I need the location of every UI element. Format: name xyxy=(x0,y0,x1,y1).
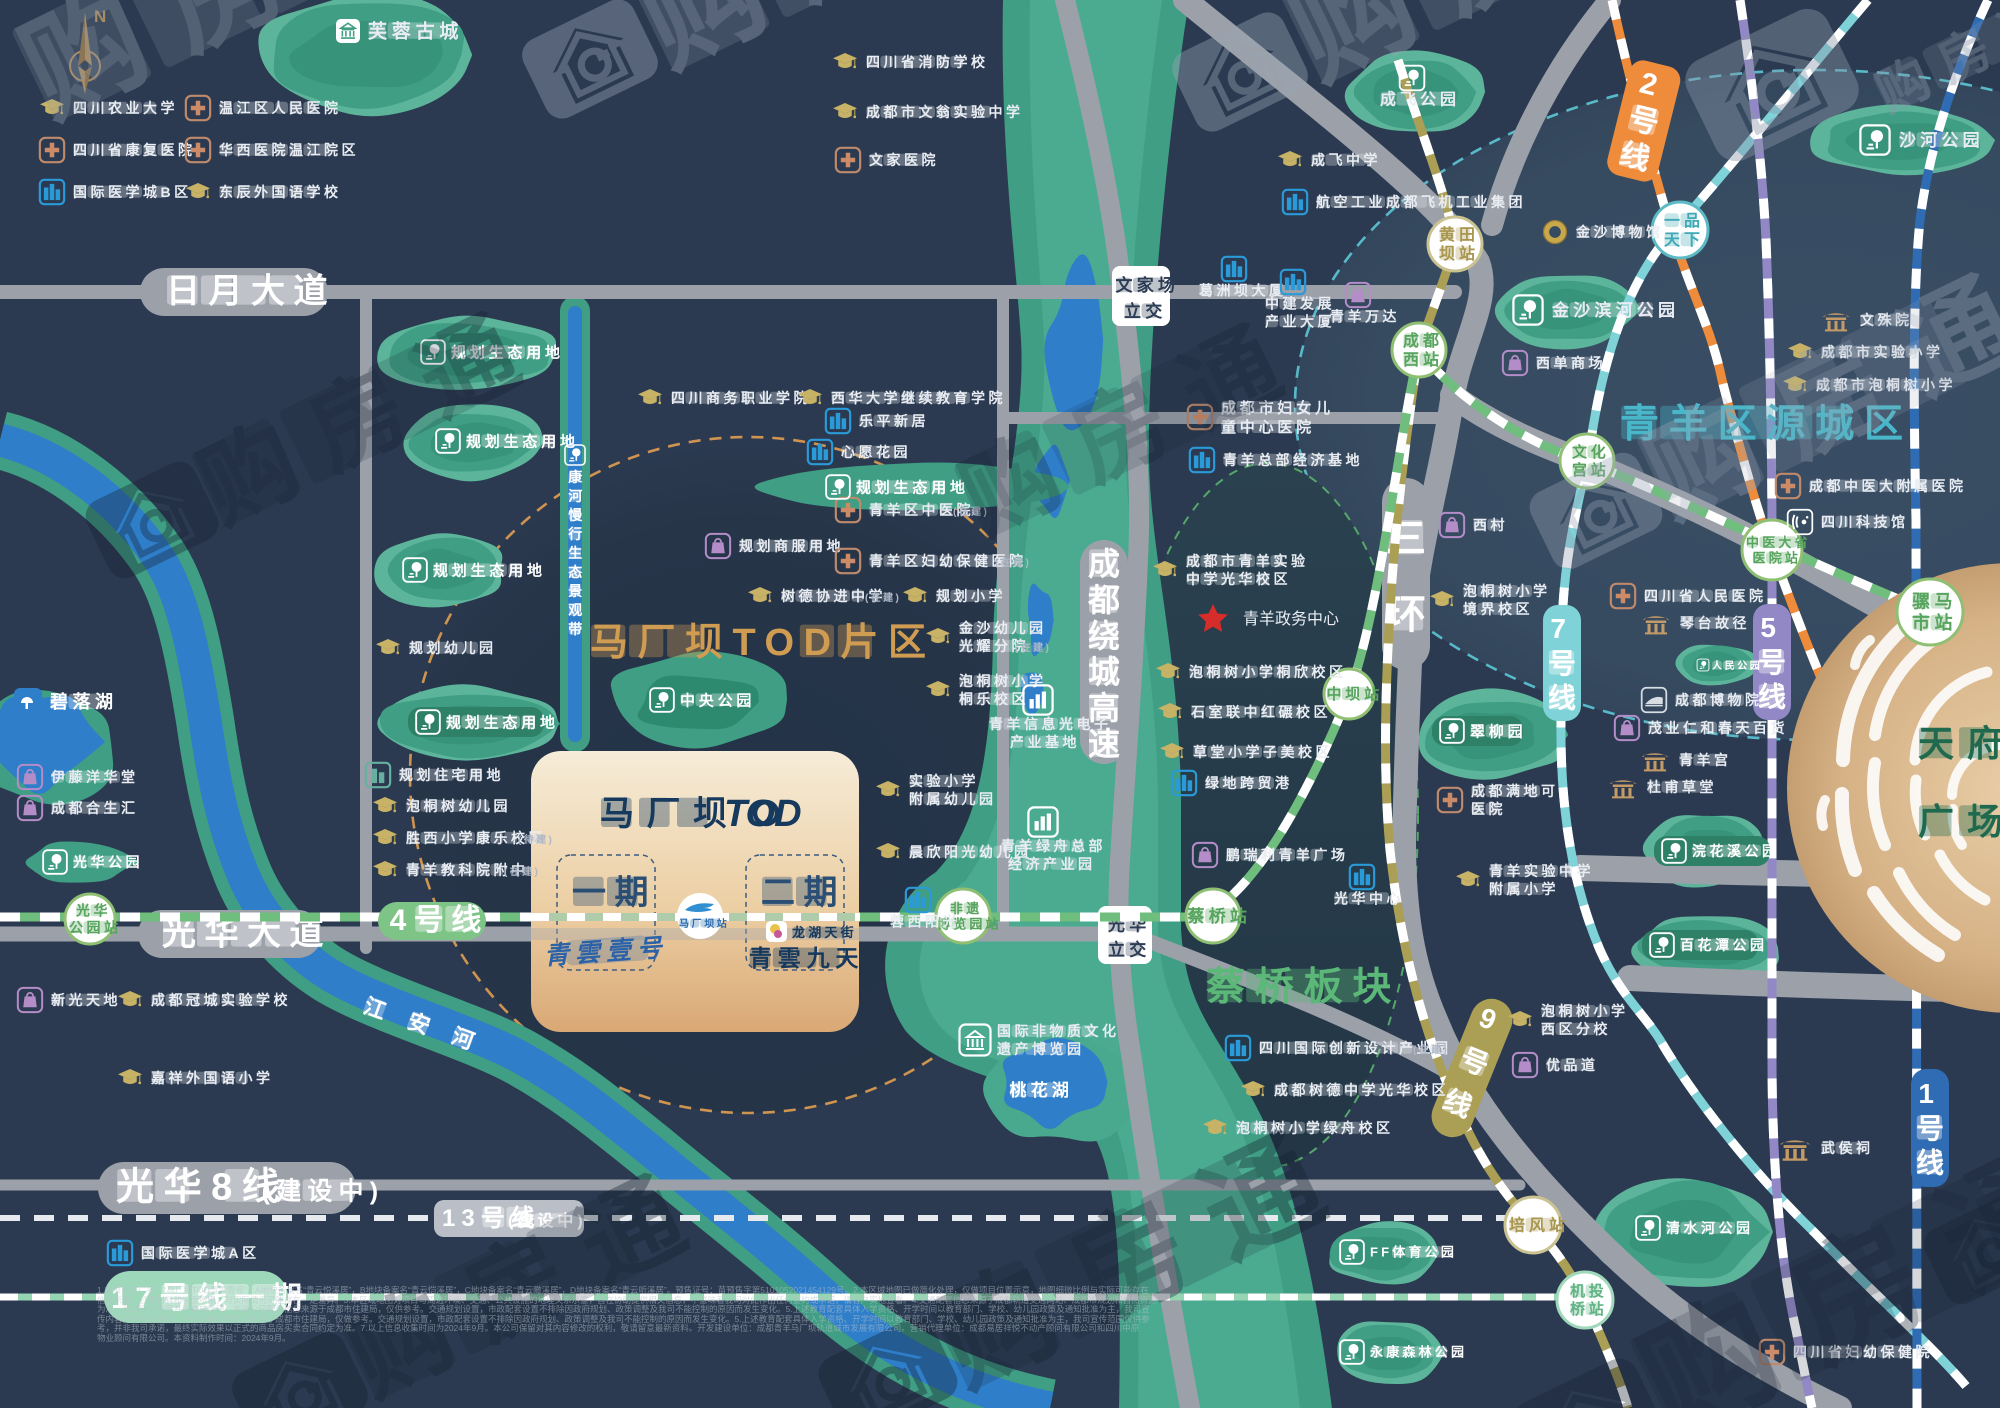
svg-text:遗产博览园: 遗产博览园 xyxy=(996,1041,1085,1057)
svg-text:(建设中): (建设中) xyxy=(262,1177,385,1205)
svg-text:琴台故径: 琴台故径 xyxy=(1680,615,1750,631)
svg-text:(在建): (在建) xyxy=(504,865,540,878)
svg-text:四川省消防学校: 四川省消防学校 xyxy=(866,54,989,70)
svg-text:观: 观 xyxy=(568,602,585,618)
svg-text:行: 行 xyxy=(567,526,585,542)
svg-text:青羊宫: 青羊宫 xyxy=(1679,752,1732,768)
svg-text:产业基地: 产业基地 xyxy=(1010,734,1080,750)
svg-text:桐乐校区: 桐乐校区 xyxy=(959,691,1029,707)
svg-text:河: 河 xyxy=(568,488,585,504)
svg-text:泡桐树小学桐欣校区: 泡桐树小学桐欣校区 xyxy=(1189,664,1347,680)
svg-text:青雲九天: 青雲九天 xyxy=(749,945,864,971)
svg-text:坝站: 坝站 xyxy=(1439,244,1479,263)
svg-text:成都博物院: 成都博物院 xyxy=(1675,692,1763,708)
svg-text:杜甫草堂: 杜甫草堂 xyxy=(1647,779,1717,795)
svg-text:中央公园: 中央公园 xyxy=(680,691,755,709)
svg-text:西华大学继续教育学院: 西华大学继续教育学院 xyxy=(831,390,1006,406)
svg-text:嘉祥外国语小学: 嘉祥外国语小学 xyxy=(150,1070,274,1086)
svg-text:泡桐树小学: 泡桐树小学 xyxy=(959,673,1047,689)
svg-text:文化: 文化 xyxy=(1572,443,1610,461)
svg-text:桥站: 桥站 xyxy=(1570,1300,1608,1318)
svg-text:成都市文翁实验中学: 成都市文翁实验中学 xyxy=(866,104,1024,120)
svg-text:芙蓉古城: 芙蓉古城 xyxy=(368,20,463,43)
svg-text:骡马: 骡马 xyxy=(1912,592,1957,612)
svg-text:马厂坝TOD片区: 马厂坝TOD片区 xyxy=(590,622,936,664)
svg-text:草堂小学子美校区: 草堂小学子美校区 xyxy=(1193,744,1333,760)
svg-text:成都市青羊实验: 成都市青羊实验 xyxy=(1186,553,1309,569)
svg-text:龙湖天街: 龙湖天街 xyxy=(792,925,857,940)
svg-text:东辰外国语学校: 东辰外国语学校 xyxy=(219,184,342,200)
svg-text:西站: 西站 xyxy=(1403,350,1443,369)
svg-text:成飞公园: 成飞公园 xyxy=(1380,90,1460,109)
svg-text:都: 都 xyxy=(1087,582,1128,618)
svg-text:成都: 成都 xyxy=(1403,331,1443,350)
svg-text:鹏瑞利青羊广场: 鹏瑞利青羊广场 xyxy=(1226,847,1349,863)
svg-text:二期: 二期 xyxy=(761,874,846,912)
svg-text:清水河公园: 清水河公园 xyxy=(1666,1220,1754,1236)
svg-text:蓉西阳光: 蓉西阳光 xyxy=(890,914,960,930)
svg-text:成飞中学: 成飞中学 xyxy=(1311,152,1381,168)
svg-text:航空工业成都飞机工业集团: 航空工业成都飞机工业集团 xyxy=(1316,194,1526,210)
svg-text:(待建): (待建) xyxy=(518,833,554,846)
svg-text:广场: 广场 xyxy=(1918,801,2000,842)
svg-text:石室联中红碾校区: 石室联中红碾校区 xyxy=(1190,704,1331,720)
svg-text:桃花湖: 桃花湖 xyxy=(1010,1080,1074,1100)
svg-text:号: 号 xyxy=(1548,648,1583,679)
svg-text:机投: 机投 xyxy=(1570,1282,1608,1300)
svg-text:考，并非我司承诺，最终实际效果以正式的商品房买卖合同约定为准: 考，并非我司承诺，最终实际效果以正式的商品房买卖合同约定为准。7.以上信息收集时… xyxy=(97,1323,1139,1333)
svg-text:金沙滨河公园: 金沙滨河公园 xyxy=(1551,300,1679,320)
svg-text:四川省人民医院: 四川省人民医院 xyxy=(1644,588,1767,604)
svg-text:规划住宅用地: 规划住宅用地 xyxy=(399,767,504,783)
svg-text:FF体育公园: FF体育公园 xyxy=(1370,1245,1457,1260)
svg-text:永康森林公园: 永康森林公园 xyxy=(1369,1345,1467,1360)
svg-text:金沙博物馆: 金沙博物馆 xyxy=(1575,224,1664,240)
svg-text:四川科技馆: 四川科技馆 xyxy=(1821,514,1909,530)
svg-text:(在建): (在建) xyxy=(1015,641,1051,654)
svg-text:规划生态用地: 规划生态用地 xyxy=(856,478,969,496)
svg-text:7: 7 xyxy=(1550,613,1573,644)
svg-text:规划生态用地: 规划生态用地 xyxy=(446,713,559,731)
svg-text:心愿花园: 心愿花园 xyxy=(841,444,911,460)
svg-text:规划生态用地: 规划生态用地 xyxy=(466,432,579,450)
svg-text:文家场: 文家场 xyxy=(1116,275,1180,295)
svg-text:华西医院温江院区: 华西医院温江院区 xyxy=(219,142,359,158)
svg-text:实验小学: 实验小学 xyxy=(909,773,979,789)
svg-text:规划商服用地: 规划商服用地 xyxy=(739,538,844,554)
svg-text:成都中医大附属医院: 成都中医大附属医院 xyxy=(1809,478,1967,494)
svg-text:一品: 一品 xyxy=(1664,212,1704,230)
svg-text:成都冠城实验学校: 成都冠城实验学校 xyxy=(151,992,291,1008)
svg-text:线: 线 xyxy=(1548,683,1583,714)
svg-text:马厂坝站: 马厂坝站 xyxy=(679,917,729,930)
svg-text:TOD: TOD xyxy=(724,793,801,835)
svg-text:四川省康复医院: 四川省康复医院 xyxy=(73,142,196,158)
svg-text:医院站: 医院站 xyxy=(1753,550,1802,565)
svg-text:成都合生汇: 成都合生汇 xyxy=(51,800,139,816)
svg-text:天下: 天下 xyxy=(1664,232,1704,249)
svg-text:立交: 立交 xyxy=(1124,301,1166,321)
svg-text:经济产业园: 经济产业园 xyxy=(1008,856,1096,872)
svg-text:1.本项目推广名：“马厂坝TOD青雲壹号”，A地块备案名“青: 1.本项目推广名：“马厂坝TOD青雲壹号”，A地块备案名“青云悦溪居”，B地块备… xyxy=(97,1285,1149,1295)
svg-text:光华中心: 光华中心 xyxy=(1333,891,1404,907)
svg-text:中坝站: 中坝站 xyxy=(1327,685,1383,703)
svg-text:国际医学城A区: 国际医学城A区 xyxy=(141,1245,260,1261)
svg-text:5: 5 xyxy=(1760,612,1783,643)
svg-text:青羊万达: 青羊万达 xyxy=(1330,309,1400,325)
svg-text:伊藤洋华堂: 伊藤洋华堂 xyxy=(50,769,139,785)
svg-text:人民公园: 人民公园 xyxy=(1712,659,1762,672)
svg-text:附属小学: 附属小学 xyxy=(1489,881,1559,897)
svg-text:为准，我司宣传内容并不构成承诺。市政公园配套信息来源于成都市: 为准，我司宣传内容并不构成承诺。市政公园配套信息来源于成都市住建局，仅供参考。交… xyxy=(97,1304,1150,1314)
svg-text:公园站: 公园站 xyxy=(69,919,122,935)
svg-text:文家医院: 文家医院 xyxy=(869,152,939,168)
svg-text:浣花溪公园: 浣花溪公园 xyxy=(1692,843,1780,859)
svg-text:天府: 天府 xyxy=(1918,723,2000,764)
svg-text:马厂坝: 马厂坝 xyxy=(600,795,740,833)
svg-text:成都满地可: 成都满地可 xyxy=(1471,783,1559,799)
svg-text:国际非物质文化: 国际非物质文化 xyxy=(997,1023,1120,1039)
svg-text:金沙幼儿园: 金沙幼儿园 xyxy=(958,620,1047,636)
svg-text:国际医学城B区: 国际医学城B区 xyxy=(73,184,192,200)
svg-text:西区分校: 西区分校 xyxy=(1541,1021,1611,1037)
svg-text:中学光华校区: 中学光华校区 xyxy=(1186,571,1291,587)
svg-text:青羊政务中心: 青羊政务中心 xyxy=(1243,610,1339,628)
svg-text:生: 生 xyxy=(568,545,585,561)
svg-text:四川商务职业学院: 四川商务职业学院 xyxy=(671,390,811,406)
svg-text:泡桐树小学: 泡桐树小学 xyxy=(1463,583,1551,599)
svg-text:(在建): (在建) xyxy=(1413,1043,1449,1056)
svg-text:景: 景 xyxy=(568,583,585,599)
svg-text:境界校区: 境界校区 xyxy=(1463,601,1533,617)
svg-text:泡桐树幼儿园: 泡桐树幼儿园 xyxy=(406,798,511,814)
svg-text:温江区人民医院: 温江区人民医院 xyxy=(219,100,342,116)
svg-text:西村: 西村 xyxy=(1473,517,1508,533)
svg-text:线: 线 xyxy=(1758,682,1793,713)
svg-text:成: 成 xyxy=(1088,546,1128,582)
svg-text:泡桐树小学: 泡桐树小学 xyxy=(1541,1003,1629,1019)
svg-text:蔡桥板块: 蔡桥板块 xyxy=(1206,966,1401,1009)
svg-text:黄田: 黄田 xyxy=(1439,225,1479,244)
svg-text:号: 号 xyxy=(1916,1113,1951,1144)
svg-text:乐平新居: 乐平新居 xyxy=(859,413,929,429)
svg-text:(在建): (在建) xyxy=(865,591,901,604)
svg-text:规划生态用地: 规划生态用地 xyxy=(433,561,546,579)
svg-text:西单商场: 西单商场 xyxy=(1536,355,1606,371)
svg-text:绕: 绕 xyxy=(1088,618,1128,654)
svg-text:培风站: 培风站 xyxy=(1509,1216,1569,1235)
svg-text:茂业仁和春天百货: 茂业仁和春天百货 xyxy=(1648,720,1788,736)
svg-text:带: 带 xyxy=(568,621,585,637)
svg-text:慢: 慢 xyxy=(568,507,585,523)
svg-text:中医大省: 中医大省 xyxy=(1746,535,1811,550)
svg-text:青羊实验中学: 青羊实验中学 xyxy=(1489,863,1594,879)
svg-text:规划小学: 规划小学 xyxy=(936,588,1006,604)
svg-text:日月大道: 日月大道 xyxy=(166,273,336,311)
svg-text:碧落湖: 碧落湖 xyxy=(49,691,118,712)
svg-text:绿地跨贸港: 绿地跨贸港 xyxy=(1205,775,1293,791)
svg-text:百花潭公园: 百花潭公园 xyxy=(1680,937,1768,953)
svg-text:城: 城 xyxy=(1088,654,1128,690)
svg-text:优品道: 优品道 xyxy=(1546,1057,1599,1073)
svg-text:青羊信息光电子: 青羊信息光电子 xyxy=(989,716,1112,732)
svg-text:蔡桥站: 蔡桥站 xyxy=(1187,906,1252,926)
svg-text:市站: 市站 xyxy=(1912,612,1957,633)
svg-text:立交: 立交 xyxy=(1108,939,1150,959)
svg-text:沙河公园: 沙河公园 xyxy=(1899,131,1984,150)
svg-text:青羊绿舟总部: 青羊绿舟总部 xyxy=(1001,838,1106,854)
svg-text:一期: 一期 xyxy=(572,874,657,912)
svg-text:光华: 光华 xyxy=(75,903,111,919)
svg-text:号: 号 xyxy=(1758,647,1793,678)
svg-text:武侯祠: 武侯祠 xyxy=(1821,1140,1874,1156)
svg-text:1: 1 xyxy=(1918,1078,1941,1109)
svg-text:4号线: 4号线 xyxy=(390,904,489,937)
svg-text:新光天地: 新光天地 xyxy=(51,992,121,1008)
svg-text:光华公园: 光华公园 xyxy=(72,854,143,870)
svg-text:态: 态 xyxy=(568,564,585,580)
svg-text:(在建): (在建) xyxy=(995,556,1031,569)
svg-text:康: 康 xyxy=(568,469,585,485)
svg-text:成都树德中学光华校区: 成都树德中学光华校区 xyxy=(1274,1082,1449,1098)
svg-text:规划幼儿园: 规划幼儿园 xyxy=(409,640,497,656)
svg-text:附属幼儿园: 附属幼儿园 xyxy=(909,791,997,807)
svg-text:医院: 医院 xyxy=(1471,801,1506,817)
svg-text:青羊总部经济基地: 青羊总部经济基地 xyxy=(1223,452,1363,468)
svg-text:翠柳园: 翠柳园 xyxy=(1470,722,1526,740)
svg-text:物业顾问有限公司。本资料制作时间：2024年9月。: 物业顾问有限公司。本资料制作时间：2024年9月。 xyxy=(97,1333,291,1343)
